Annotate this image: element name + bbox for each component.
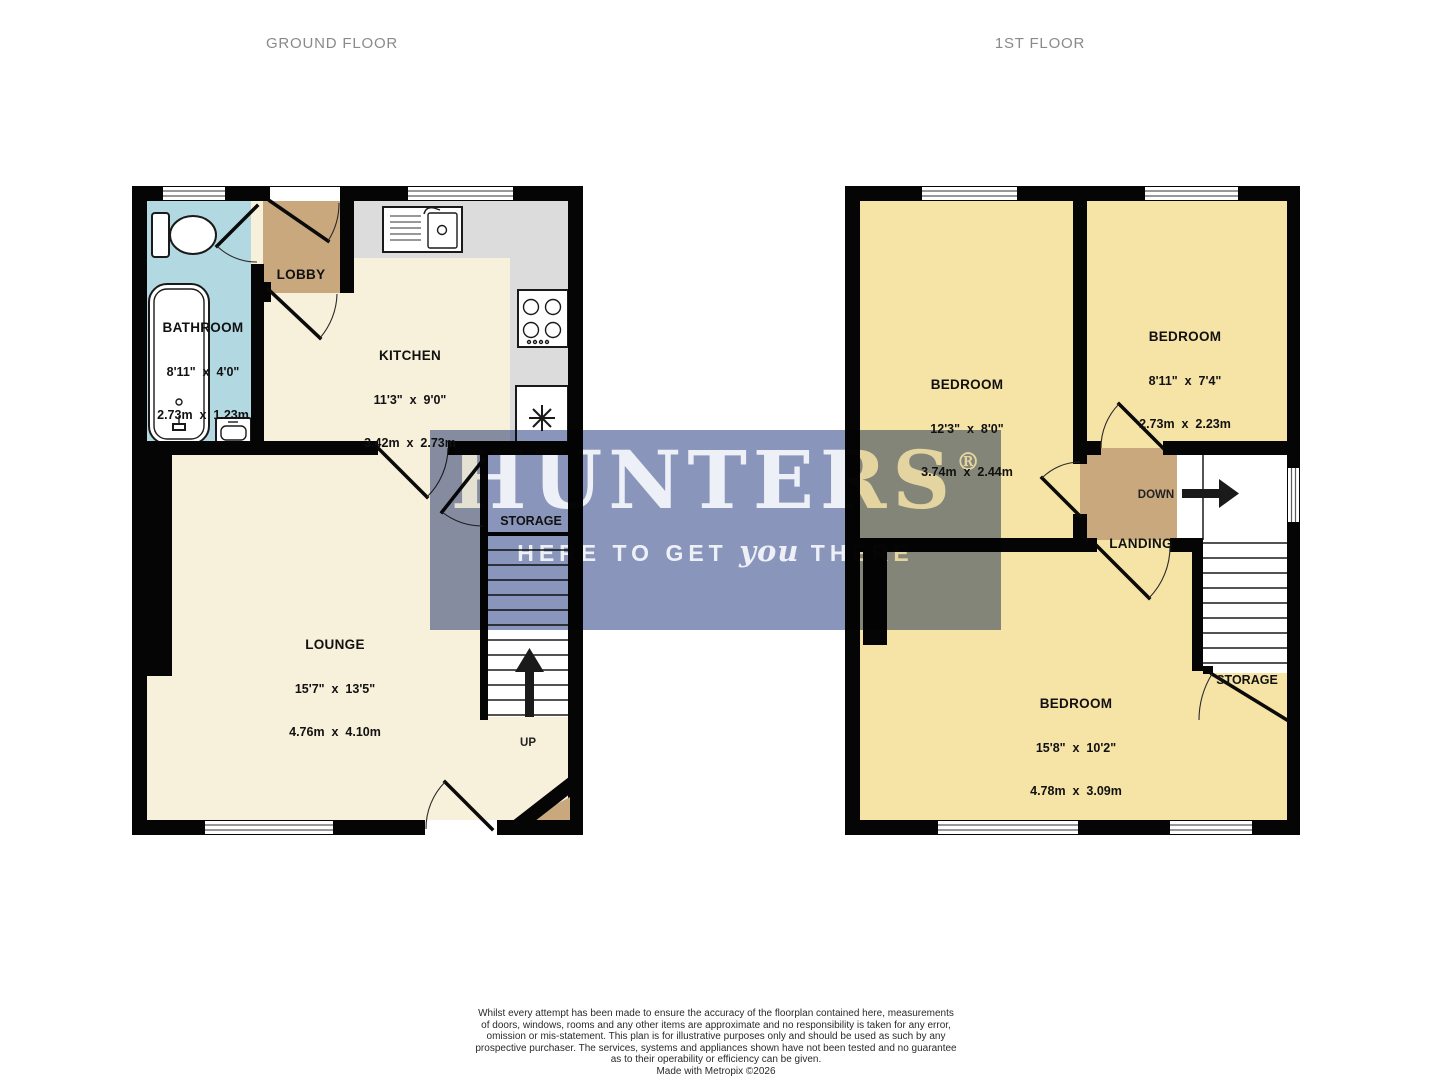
ground-floor-title: GROUND FLOOR — [266, 35, 398, 52]
disclaimer-line: omission or mis-statement. This plan is … — [406, 1031, 1026, 1043]
chimney-breast — [144, 450, 172, 676]
room-label-kitchen: KITCHEN 11'3" x 9'0" 3.42m x 2.73m — [364, 320, 456, 465]
room-label-bedroom2: BEDROOM 8'11" x 7'4" 2.73m x 2.23m — [1139, 301, 1231, 446]
back-door-opening — [270, 187, 340, 201]
room-label-bedroom3: BEDROOM 15'8" x 10'2" 4.78m x 3.09m — [1030, 668, 1122, 813]
room-label-lounge: LOUNGE 15'7" x 13'5" 4.76m x 4.10m — [289, 609, 381, 754]
disclaimer: Whilst every attempt has been made to en… — [406, 1008, 1026, 1077]
room-label-storage-first: STORAGE — [1216, 644, 1278, 702]
disclaimer-line: as to their operability or efficiency ca… — [406, 1054, 1026, 1066]
toilet-icon — [152, 213, 216, 257]
floorplan-page: { "titles": { "ground": "GROUND FLOOR", … — [0, 0, 1433, 1080]
disclaimer-line: prospective purchaser. The services, sys… — [406, 1043, 1026, 1055]
room-label-bathroom: BATHROOM 8'11" x 4'0" 2.73m x 1.23m — [157, 292, 249, 437]
room-label-lobby: LOBBY — [277, 239, 326, 297]
kitchen-sink-icon — [383, 207, 462, 252]
first-floor-title: 1ST FLOOR — [995, 35, 1085, 52]
hob-icon — [518, 290, 568, 347]
room-label-bedroom1: BEDROOM 12'3" x 8'0" 3.74m x 2.44m — [921, 349, 1013, 494]
room-label-landing: LANDING — [1109, 508, 1173, 566]
disclaimer-line: Whilst every attempt has been made to en… — [406, 1008, 1026, 1020]
disclaimer-line: Made with Metropix ©2026 — [406, 1066, 1026, 1078]
disclaimer-line: of doors, windows, rooms and any other i… — [406, 1020, 1026, 1032]
stairs-up-label: UP — [520, 736, 536, 751]
stairs-down-label: DOWN — [1138, 488, 1174, 503]
room-label-storage-ground: STORAGE — [500, 485, 562, 543]
